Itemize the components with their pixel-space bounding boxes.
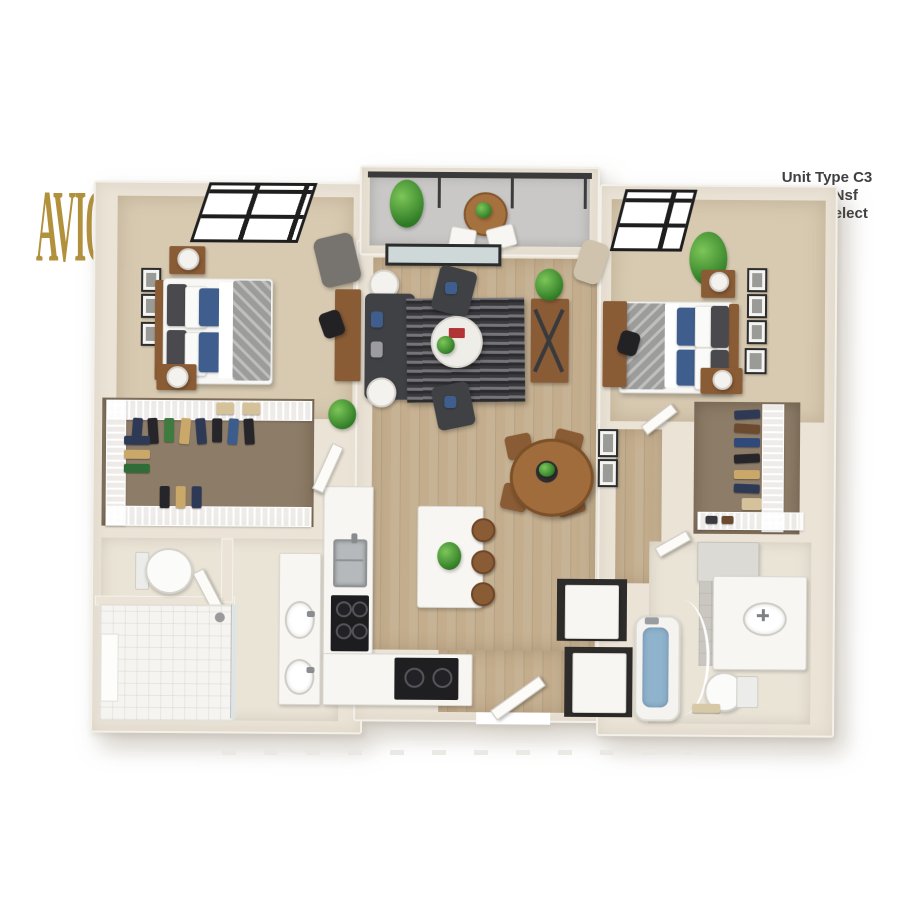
- bedroom1-lamp-1: [177, 248, 199, 270]
- bedroom2-lamp-1: [709, 272, 729, 292]
- bedroom1-lamp-2: [166, 366, 188, 388]
- closet1-box-2: [242, 403, 260, 415]
- closet1-clothes-12: [160, 486, 170, 508]
- entry-opening: [476, 712, 550, 725]
- closet1-clothes-10: [124, 450, 150, 459]
- bedroom2-wall-frame-2: [747, 294, 767, 318]
- washer: [565, 585, 619, 639]
- walk-in-shower: [98, 604, 235, 723]
- cooktop-burner-3: [336, 623, 352, 639]
- shower-bench: [100, 634, 118, 702]
- bath1-faucet-2: [306, 667, 314, 673]
- bathtub-faucet: [645, 617, 659, 624]
- closet2-clothes-2: [734, 423, 760, 434]
- sofa-pillow-gray: [371, 341, 383, 357]
- hallway-frame-2: [598, 459, 618, 487]
- armchair-bottom-pillow: [444, 396, 456, 408]
- closet1-clothes-3: [164, 418, 174, 442]
- bedroom1-window: [190, 182, 318, 243]
- closet1-clothes-5: [195, 418, 207, 445]
- bed1-pillow-blue-1: [199, 288, 221, 326]
- bed2-pillow-dark-1: [711, 306, 729, 348]
- living-plant-top: [535, 269, 563, 301]
- island-stool-1: [471, 518, 495, 542]
- bedroom2-lamp-2: [712, 370, 732, 390]
- closet2-clothes-5: [734, 470, 760, 479]
- bedroom2-wall-frame-1: [747, 268, 767, 292]
- armchair-top-pillow: [445, 282, 457, 294]
- closet2-clothes-1: [734, 409, 760, 419]
- closet1-clothes-9: [124, 436, 150, 445]
- closet1-clothes-7: [227, 418, 239, 445]
- shower-head: [215, 612, 225, 622]
- sliding-glass-door: [385, 244, 501, 267]
- dining-centerpiece-plant: [539, 463, 555, 477]
- island-stool-3: [471, 582, 495, 606]
- closet1-clothes-8: [243, 418, 255, 445]
- closet2-shoes-1: [705, 516, 717, 524]
- closet2-clothes-6: [734, 484, 760, 494]
- bath2-mat: [692, 704, 720, 713]
- cooktop-burner-4: [352, 623, 368, 639]
- closet1-clothes-11: [124, 464, 150, 473]
- range-grate-2: [432, 668, 452, 688]
- bedroom2-wall-frame-3: [747, 320, 767, 344]
- closet1-box-1: [216, 402, 234, 414]
- cooktop-burner-1: [336, 601, 352, 617]
- bed1-duvet: [232, 280, 271, 380]
- kitchen-sink-divider: [335, 559, 363, 561]
- shower-glass-panel: [230, 604, 237, 718]
- island-plant: [437, 542, 461, 570]
- closet2-box: [742, 498, 762, 510]
- living-lamp-table-2: [366, 377, 396, 407]
- closet1-clothes-14: [192, 486, 202, 508]
- dryer: [572, 653, 626, 713]
- coffee-table-book: [449, 328, 465, 338]
- closet2-clothes-4: [734, 453, 760, 463]
- cooktop-burner-2: [352, 601, 368, 617]
- closet1-shelf-bottom: [105, 506, 311, 527]
- bed1-pillow-blue-2: [199, 332, 221, 372]
- kitchen-sink: [333, 539, 367, 587]
- living-plant-corner: [328, 399, 356, 429]
- watermark-line: [222, 750, 692, 755]
- closet1-clothes-6: [212, 418, 222, 442]
- coffee-table-plant: [437, 336, 455, 354]
- bath1-sink-2: [284, 659, 314, 695]
- toilet2-tank: [736, 676, 758, 708]
- balcony-plant: [390, 180, 424, 228]
- bath1-sink-1: [285, 601, 315, 639]
- kitchen-faucet: [351, 533, 357, 543]
- bedroom2-wall-frame-4: [745, 348, 767, 374]
- bistro-table-plant: [476, 202, 492, 218]
- range-grate-1: [404, 668, 424, 688]
- closet2-clothes-3: [734, 438, 760, 447]
- bath2-faucet-v: [762, 609, 765, 621]
- bath1-side-wall: [221, 538, 233, 602]
- bath1-faucet-1: [307, 611, 315, 617]
- hallway-frame-1: [598, 429, 618, 457]
- closet2-shoes-2: [721, 516, 733, 524]
- closet1-clothes-13: [176, 486, 186, 508]
- sofa-pillow-blue: [371, 311, 383, 327]
- island-stool-2: [471, 550, 495, 574]
- floor-plan: [0, 0, 900, 903]
